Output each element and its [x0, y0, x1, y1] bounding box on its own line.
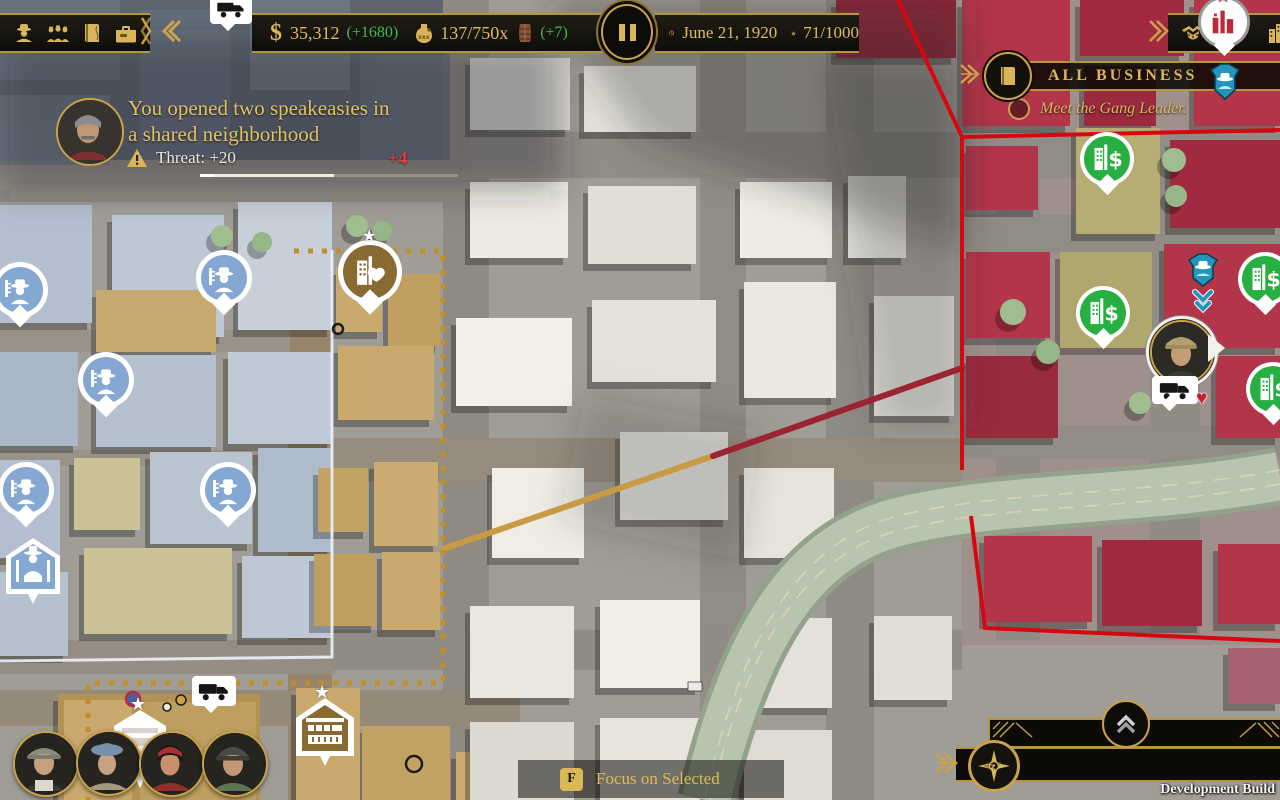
district-bar-chevrons[interactable]	[1146, 18, 1172, 44]
building-icon	[1266, 21, 1280, 45]
money-value: 35,312	[290, 23, 340, 44]
focus-keycap[interactable]: F	[560, 768, 583, 791]
map-pin-business-3[interactable]: $	[1076, 286, 1130, 340]
truck-icon	[215, 0, 247, 19]
business-dollar-icon: $	[1089, 141, 1125, 177]
map-pin-rival-hq[interactable]	[6, 538, 60, 610]
clock-icon	[669, 23, 674, 43]
map-pin-business-4[interactable]: $	[1246, 362, 1280, 416]
star-icon: ★	[130, 694, 146, 715]
menu-collapse-button[interactable]	[138, 16, 182, 46]
crew-menu-button[interactable]	[42, 18, 74, 48]
threat-progress	[200, 174, 458, 177]
date-value: June 21, 1920	[682, 23, 777, 43]
crew-portrait-3[interactable]	[139, 731, 205, 797]
star-icon: ★	[362, 226, 376, 245]
business-dollar-icon: $	[1255, 371, 1280, 407]
map-pin-crew-5[interactable]	[200, 462, 256, 518]
gangster-icon	[207, 261, 241, 295]
character-face	[1152, 322, 1210, 380]
gangster-icon	[9, 473, 43, 507]
ledger-icon	[997, 64, 1019, 88]
map-pin-business-2[interactable]: $	[1238, 252, 1280, 306]
moonshine-jug-icon: xxx	[414, 21, 434, 45]
map-pin-crew-2[interactable]	[196, 250, 252, 306]
booze-value: 137/750x	[440, 23, 508, 44]
star-icon: ★	[314, 682, 330, 703]
notification-portrait	[56, 98, 124, 166]
gangster-icon	[211, 473, 245, 507]
map-pin-business-1[interactable]: $	[1080, 132, 1134, 186]
svg-text:$: $	[1108, 148, 1122, 172]
truck-icon	[1158, 379, 1192, 401]
vehicle-badge[interactable]	[1152, 376, 1198, 404]
boss-icon	[12, 21, 36, 45]
business-dollar-icon: $	[1085, 295, 1121, 331]
crew-icon	[45, 21, 71, 45]
objective-title: ALL BUSINESS	[1048, 67, 1197, 85]
map-pin-district[interactable]: ★	[1198, 0, 1250, 48]
panel-chevrons[interactable]	[932, 750, 962, 776]
crew-portrait-1[interactable]	[13, 731, 79, 797]
svg-text:$: $	[1104, 302, 1118, 326]
date-bar: June 21, 1920 71/1000	[655, 13, 859, 53]
respect-value: 71/1000	[803, 23, 859, 43]
objective-checkbox[interactable]	[1008, 98, 1030, 120]
map-pin-truck[interactable]	[192, 676, 236, 706]
objective-task-text: Meet the Gang Leader.	[1040, 100, 1187, 118]
map-pin-truck-2[interactable]	[210, 0, 252, 24]
map-pin-player-hq[interactable]: ★	[296, 698, 354, 772]
police-keystone-badge[interactable]	[1208, 62, 1242, 107]
svg-text:z: z	[990, 763, 995, 773]
focus-label: Focus on Selected	[596, 769, 720, 789]
crew-portrait-4[interactable]	[202, 731, 268, 797]
truck-icon	[197, 680, 231, 702]
warning-icon	[126, 148, 148, 168]
barrel-icon	[516, 22, 534, 44]
notification-line1: You opened two speakeasies in	[128, 96, 390, 121]
red-star-icon: ★	[1215, 0, 1231, 7]
threat-delta: +4	[388, 148, 407, 169]
expand-panel-button[interactable]	[1102, 700, 1150, 748]
selection-arrow-icon	[1208, 334, 1225, 362]
gangster-icon	[3, 273, 37, 307]
notification-line2: a shared neighborhood	[128, 122, 319, 147]
compass-button[interactable]: z	[968, 740, 1020, 792]
crew-portrait-2[interactable]	[76, 730, 142, 796]
resources-bar: $ 35,312 (+1680) xxx 137/750x (+7)	[252, 13, 636, 53]
objective-category-button[interactable]	[984, 52, 1032, 100]
map-pin-crew-3[interactable]	[78, 352, 134, 408]
svg-text:xxx: xxx	[418, 34, 430, 41]
boss-menu-button[interactable]	[8, 18, 40, 48]
business-dollar-icon: $	[1247, 261, 1280, 297]
chevron-up-icon	[1113, 711, 1139, 737]
money-icon: $	[270, 20, 282, 47]
objective-chevrons[interactable]	[958, 62, 986, 86]
ledger-icon	[81, 21, 103, 45]
svg-text:$: $	[1274, 378, 1280, 402]
gangster-icon	[89, 363, 123, 397]
money-delta: (+1680)	[347, 24, 399, 42]
build-watermark: Development Build	[1160, 782, 1275, 798]
map-pin-speakeasy[interactable]: ★	[338, 240, 402, 304]
respect-star-icon	[791, 24, 796, 43]
main-menu-bar	[0, 13, 150, 53]
pause-button[interactable]	[601, 4, 653, 60]
compass-icon: z	[977, 749, 1011, 783]
map-pin-crew-1[interactable]	[0, 262, 48, 318]
bag-icon	[113, 21, 139, 45]
heart-icon: ♥	[1196, 388, 1207, 410]
threat-value: Threat: +20	[156, 148, 236, 168]
city-overview-button[interactable]	[1261, 18, 1280, 48]
objective-task[interactable]: Meet the Gang Leader.	[1008, 98, 1187, 120]
booze-delta: (+7)	[540, 24, 568, 42]
map-pin-crew-4[interactable]	[0, 462, 54, 518]
focus-hint-bar: F Focus on Selected	[518, 760, 784, 798]
police-keystone-marker[interactable]	[1186, 252, 1220, 319]
ledger-menu-button[interactable]	[76, 18, 108, 48]
business-heart-icon	[350, 252, 390, 292]
svg-text:$: $	[1266, 268, 1280, 292]
